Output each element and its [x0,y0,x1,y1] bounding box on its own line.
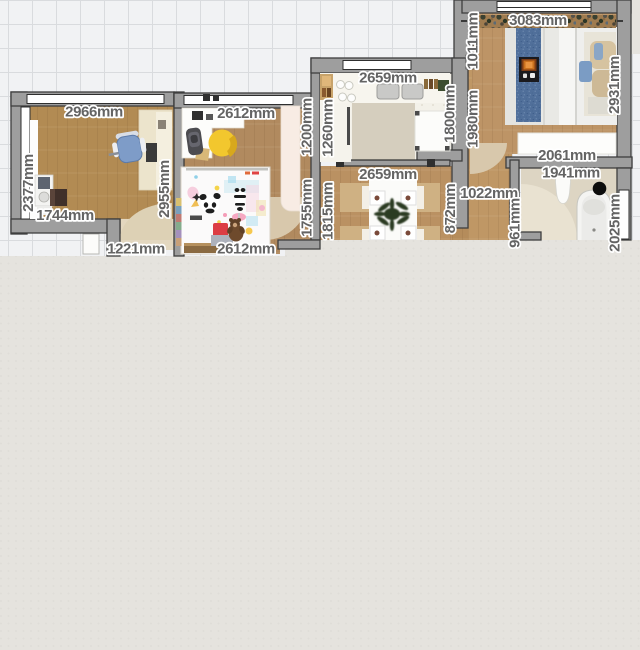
svg-text:2612mm: 2612mm [217,105,275,122]
svg-text:2061mm: 2061mm [538,147,596,164]
svg-text:961mm: 961mm [507,198,524,248]
svg-text:1941mm: 1941mm [542,165,600,182]
svg-text:1260mm: 1260mm [320,99,337,157]
svg-text:1200mm: 1200mm [299,98,316,156]
svg-text:2659mm: 2659mm [359,166,417,183]
svg-text:872mm: 872mm [442,184,459,234]
svg-text:2955mm: 2955mm [156,160,173,218]
svg-text:2966mm: 2966mm [65,104,123,121]
svg-text:1744mm: 1744mm [36,207,94,224]
svg-text:2931mm: 2931mm [606,56,623,114]
svg-text:1755mm: 1755mm [299,179,316,237]
svg-text:1221mm: 1221mm [107,241,165,258]
svg-text:1011mm: 1011mm [465,13,482,70]
svg-text:3083mm: 3083mm [509,12,567,29]
svg-text:1980mm: 1980mm [465,90,482,148]
svg-text:2025mm: 2025mm [607,194,624,252]
svg-text:2659mm: 2659mm [359,70,417,87]
svg-text:1800mm: 1800mm [442,85,459,143]
svg-text:1815mm: 1815mm [320,182,337,240]
svg-text:2377mm: 2377mm [20,154,37,212]
svg-text:2612mm: 2612mm [217,241,275,258]
